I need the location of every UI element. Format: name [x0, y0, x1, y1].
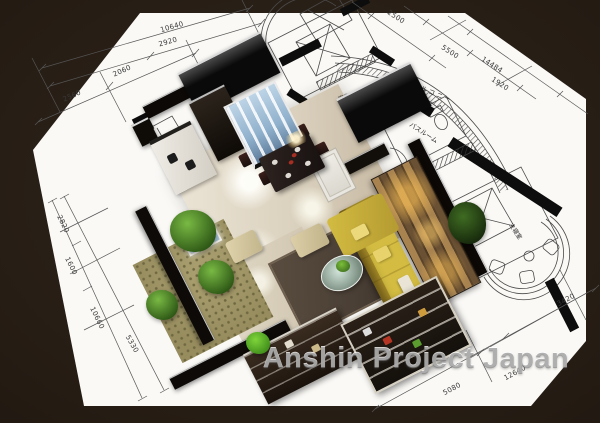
- garden-plant: [146, 290, 178, 320]
- garden-plant: [198, 260, 234, 294]
- stove-burner: [184, 159, 196, 171]
- stove-burner: [167, 152, 179, 164]
- plate: [271, 159, 279, 166]
- decor-item-white: [362, 327, 372, 337]
- coffee-table-plant: [336, 260, 350, 272]
- red-dish: [291, 153, 297, 159]
- corridor-plant: [448, 202, 486, 244]
- plate: [284, 172, 292, 179]
- framed-floorplan-image: キッチン 寝室 バルコニー バスルーム 主寝室 10640 2920 2560 …: [0, 0, 600, 423]
- plate: [304, 159, 312, 166]
- garden-plant: [170, 210, 216, 252]
- decor-item-amber: [417, 307, 427, 317]
- red-dish: [288, 160, 294, 166]
- watermark-text: Anshin Project Japan: [238, 343, 594, 376]
